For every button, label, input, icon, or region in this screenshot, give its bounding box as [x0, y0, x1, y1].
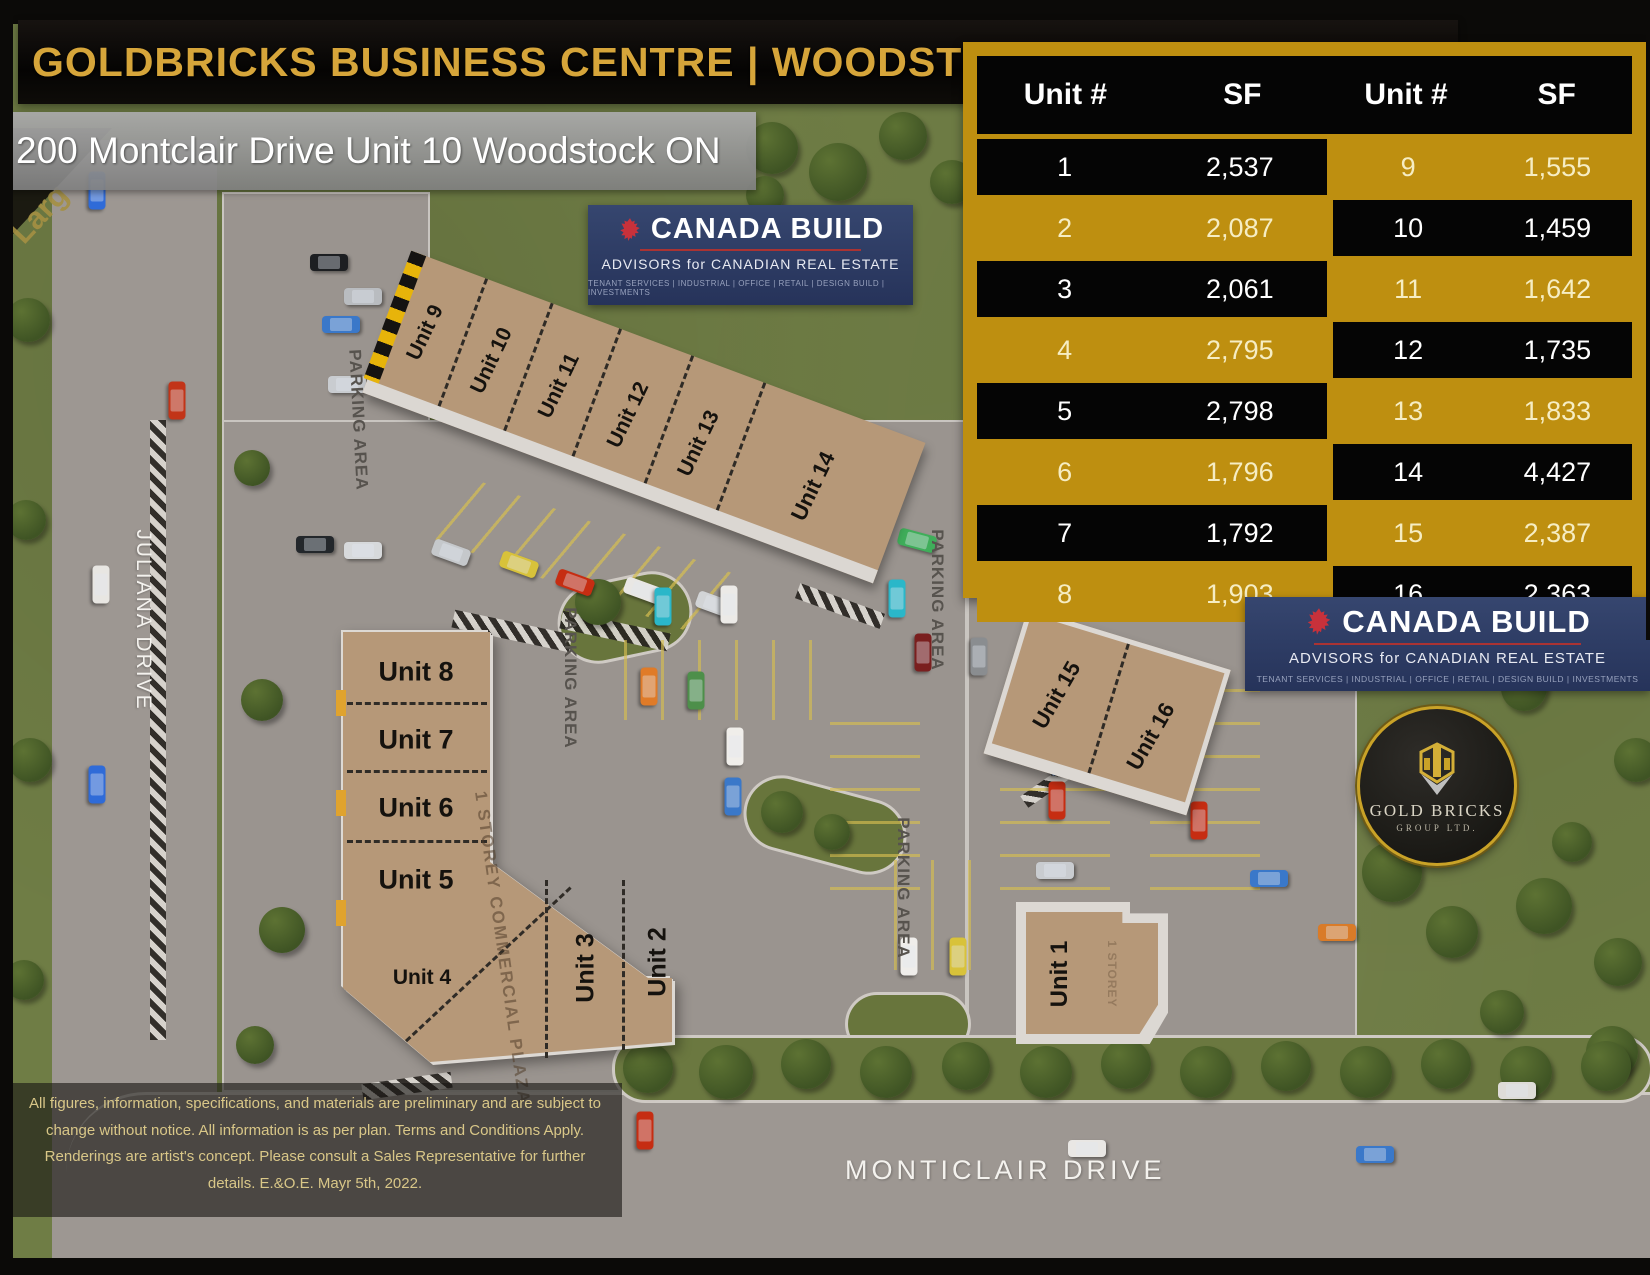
car — [655, 588, 672, 626]
unit-sf: 1,796 — [1152, 457, 1327, 488]
tree — [8, 738, 52, 782]
tree — [1340, 1046, 1392, 1098]
car — [89, 766, 106, 804]
car — [93, 566, 110, 604]
maple-leaf-icon — [1304, 607, 1334, 637]
unit-number: 3 — [977, 274, 1152, 305]
unit-size-table: Unit # SF Unit # SF 12,537 91,555 22,087… — [963, 42, 1646, 598]
unit-sf: 4,427 — [1483, 457, 1632, 488]
tree — [860, 1046, 912, 1098]
tree — [761, 791, 803, 833]
canada-build-services: TENANT SERVICES | INDUSTRIAL | OFFICE | … — [588, 279, 913, 297]
unit-sf: 2,537 — [1152, 152, 1327, 183]
page-title: GOLDBRICKS BUSINESS CENTRE | WOODSTOCK — [18, 39, 1056, 86]
bottom-edge-bar — [0, 1258, 1650, 1275]
tree — [234, 450, 270, 486]
unit-label-13: Unit 13 — [673, 407, 725, 481]
tree — [259, 907, 305, 953]
unit-label-1: Unit 1 — [1046, 941, 1074, 1008]
car — [310, 254, 348, 271]
car — [344, 288, 382, 305]
table-row: 42,795 121,735 — [977, 322, 1632, 378]
parking-area-label: PARKING AREA — [927, 529, 947, 670]
unit-number: 10 — [1333, 213, 1482, 244]
loading-door — [336, 690, 346, 716]
unit-label-14: Unit 14 — [786, 448, 841, 525]
car — [725, 778, 742, 816]
table-row: 52,798 131,833 — [977, 383, 1632, 439]
gold-bricks-subtitle: GROUP LTD. — [1396, 823, 1477, 833]
tree — [1516, 878, 1572, 934]
site-plan-canvas: Unit 9 Unit 10 Unit 11 Unit 12 Unit 13 U… — [0, 0, 1650, 1275]
car — [1498, 1082, 1536, 1099]
right-edge-sliver — [1646, 0, 1650, 640]
tree — [781, 1039, 831, 1089]
car — [169, 382, 186, 420]
tree — [699, 1045, 753, 1099]
unit-number: 1 — [977, 152, 1152, 183]
car — [322, 316, 360, 333]
logo-divider — [640, 249, 861, 251]
tree — [1426, 906, 1478, 958]
loading-door — [336, 900, 346, 926]
tree — [241, 679, 283, 721]
canada-build-tagline: ADVISORS for CANADIAN REAL ESTATE — [1289, 650, 1606, 667]
disclaimer-panel: All figures, information, specifications… — [8, 1083, 622, 1217]
car — [641, 668, 658, 706]
car — [1191, 802, 1208, 840]
tree — [1614, 738, 1650, 782]
unit-sf: 1,642 — [1483, 274, 1632, 305]
col-header-sf: SF — [1154, 78, 1331, 112]
canada-build-name: CANADA BUILD — [651, 213, 884, 246]
tree — [236, 1026, 274, 1064]
parking-area-label: PARKING AREA — [560, 607, 580, 748]
table-header-row: Unit # SF Unit # SF — [977, 56, 1632, 134]
unit-divider — [347, 702, 487, 705]
unit-divider — [347, 840, 487, 843]
unit-number: 6 — [977, 457, 1152, 488]
address-text: 200 Montclair Drive Unit 10 Woodstock ON — [0, 130, 721, 172]
tree — [1020, 1046, 1072, 1098]
unit-sf: 1,459 — [1483, 213, 1632, 244]
unit-divider — [716, 382, 766, 510]
canada-build-logo: CANADA BUILD ADVISORS for CANADIAN REAL … — [1245, 597, 1650, 691]
gold-bricks-name: GOLD BRICKS — [1370, 801, 1505, 821]
unit-1-storey-label: 1 STOREY — [1105, 940, 1119, 1007]
table-row: 32,061 111,642 — [977, 261, 1632, 317]
car — [889, 580, 906, 618]
unit-number: 9 — [1333, 152, 1482, 183]
left-edge-bar — [0, 0, 13, 1275]
unit-number: 11 — [1333, 274, 1482, 305]
unit-number: 12 — [1333, 335, 1482, 366]
unit-label-9: Unit 9 — [402, 301, 449, 364]
car — [971, 638, 988, 676]
crosswalk-hatch — [150, 420, 166, 1040]
car — [727, 728, 744, 766]
tree — [942, 1042, 990, 1090]
unit-divider — [545, 880, 548, 1058]
car — [688, 672, 705, 710]
car — [1318, 924, 1356, 941]
disclaimer-text: All figures, information, specifications… — [29, 1095, 601, 1192]
canada-build-tagline: ADVISORS for CANADIAN REAL ESTATE — [601, 256, 899, 272]
table-row: 22,087 101,459 — [977, 200, 1632, 256]
street-label-monticlair: MONTICLAIR DRIVE — [845, 1155, 1166, 1186]
tree — [1552, 822, 1592, 862]
unit-sf: 2,387 — [1483, 518, 1632, 549]
car — [1049, 782, 1066, 820]
unit-label-10: Unit 10 — [466, 324, 518, 398]
tree — [1480, 990, 1524, 1034]
car — [721, 586, 738, 624]
car — [344, 542, 382, 559]
unit-number: 14 — [1333, 457, 1482, 488]
unit-sf: 1,792 — [1152, 518, 1327, 549]
unit-sf: 1,833 — [1483, 396, 1632, 427]
tree — [809, 143, 867, 201]
unit-label-3: Unit 3 — [572, 933, 601, 1002]
unit-number: 13 — [1333, 396, 1482, 427]
street-label-juliana: JULIANA DRIVE — [131, 529, 155, 710]
unit-number: 7 — [977, 518, 1152, 549]
unit-sf: 1,555 — [1483, 152, 1632, 183]
table-row: 61,796 144,427 — [977, 444, 1632, 500]
tree — [1101, 1039, 1151, 1089]
unit-label-6: Unit 6 — [378, 793, 453, 824]
building-unit-1: Unit 1 1 STOREY — [1016, 902, 1168, 1044]
unit-label-2: Unit 2 — [644, 927, 673, 996]
unit-divider — [1087, 643, 1129, 773]
unit-label-15: Unit 15 — [1027, 657, 1086, 734]
tree — [1421, 1039, 1471, 1089]
tree — [1581, 1041, 1631, 1091]
gold-bricks-logo: GOLD BRICKS GROUP LTD. — [1357, 706, 1517, 866]
car — [1250, 870, 1288, 887]
canada-build-name: CANADA BUILD — [1342, 604, 1591, 640]
car — [1356, 1146, 1394, 1163]
unit-label-8: Unit 8 — [378, 657, 453, 688]
unit-label-16: Unit 16 — [1121, 698, 1180, 775]
car — [637, 1112, 654, 1150]
unit-sf: 1,735 — [1483, 335, 1632, 366]
maple-leaf-icon — [617, 217, 643, 243]
tree — [1261, 1041, 1311, 1091]
table-row: 71,792 152,387 — [977, 505, 1632, 561]
car — [1036, 862, 1074, 879]
col-header-unit2: Unit # — [1331, 78, 1482, 112]
unit-sf: 2,798 — [1152, 396, 1327, 427]
col-header-sf2: SF — [1481, 78, 1632, 112]
unit-sf: 2,061 — [1152, 274, 1327, 305]
unit-sf: 2,795 — [1152, 335, 1327, 366]
address-banner: 200 Montclair Drive Unit 10 Woodstock ON — [0, 112, 756, 190]
unit-label-5: Unit 5 — [378, 865, 453, 896]
tree — [814, 814, 850, 850]
car — [296, 536, 334, 553]
tree — [623, 1043, 673, 1093]
tree — [1180, 1046, 1232, 1098]
canada-build-logo: CANADA BUILD ADVISORS for CANADIAN REAL … — [588, 205, 913, 305]
unit-number: 2 — [977, 213, 1152, 244]
unit-label-7: Unit 7 — [378, 725, 453, 756]
parking-stalls — [590, 640, 830, 720]
tree — [1594, 938, 1642, 986]
unit-divider — [347, 770, 487, 773]
unit-number: 4 — [977, 335, 1152, 366]
logo-divider — [1314, 643, 1581, 645]
canada-build-services: TENANT SERVICES | INDUSTRIAL | OFFICE | … — [1257, 674, 1639, 684]
tree — [879, 112, 927, 160]
table-row: 12,537 91,555 — [977, 139, 1632, 195]
unit-number: 5 — [977, 396, 1152, 427]
gold-bricks-emblem-icon — [1406, 739, 1468, 797]
unit-label-4: Unit 4 — [393, 966, 451, 990]
unit-label-12: Unit 12 — [603, 378, 655, 452]
parking-area-label: PARKING AREA — [893, 817, 913, 958]
car — [950, 938, 967, 976]
unit-sf: 2,087 — [1152, 213, 1327, 244]
col-header-unit: Unit # — [977, 78, 1154, 112]
loading-door — [336, 790, 346, 816]
unit-number: 8 — [977, 579, 1152, 610]
unit-divider — [622, 880, 625, 1050]
unit-label-11: Unit 11 — [534, 350, 585, 422]
unit-number: 15 — [1333, 518, 1482, 549]
